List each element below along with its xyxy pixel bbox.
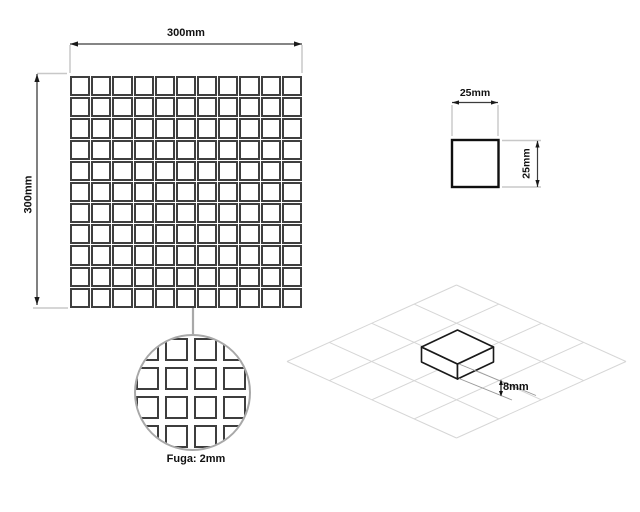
- mosaic-tile: [112, 97, 132, 117]
- mosaic-tile: [70, 288, 90, 308]
- detail-tile: [223, 338, 246, 361]
- detail-tile: [165, 367, 188, 390]
- tile-3d-box: [422, 330, 494, 379]
- mosaic-tile: [239, 76, 259, 96]
- detail-tile: [194, 425, 217, 448]
- mosaic-tile: [112, 245, 132, 265]
- mosaic-tile: [197, 224, 217, 244]
- mosaic-tile: [112, 140, 132, 160]
- mosaic-tile: [91, 267, 111, 287]
- mosaic-tile: [218, 203, 238, 223]
- mosaic-tile: [239, 267, 259, 287]
- mosaic-tile: [261, 76, 281, 96]
- detail-tile: [194, 396, 217, 419]
- mosaic-tile: [91, 245, 111, 265]
- tile-width-label: 25mm: [440, 87, 510, 100]
- mosaic-tile: [176, 245, 196, 265]
- mosaic-tile: [112, 118, 132, 138]
- mosaic-tile: [70, 224, 90, 244]
- mosaic-tile: [239, 118, 259, 138]
- mosaic-tile: [112, 288, 132, 308]
- mosaic-tile: [91, 76, 111, 96]
- mosaic-tile: [282, 182, 302, 202]
- mosaic-tile: [155, 203, 175, 223]
- mosaic-tile: [197, 118, 217, 138]
- arrowhead-up-icon: [535, 141, 539, 148]
- mosaic-tile: [282, 140, 302, 160]
- mosaic-tile: [261, 182, 281, 202]
- mosaic-tile: [134, 203, 154, 223]
- mosaic-tile: [261, 245, 281, 265]
- arrowhead-right-icon: [491, 100, 498, 104]
- mosaic-tile: [261, 118, 281, 138]
- mosaic-tile: [112, 267, 132, 287]
- mosaic-tile: [155, 267, 175, 287]
- grout-label: Fuga: 2mm: [136, 453, 256, 465]
- mosaic-tile: [197, 76, 217, 96]
- mosaic-tile: [176, 182, 196, 202]
- mosaic-tile: [261, 267, 281, 287]
- mosaic-tile: [176, 203, 196, 223]
- detail-tile: [223, 425, 246, 448]
- mosaic-tile: [112, 161, 132, 181]
- tile-specification-drawing: { "drawing": { "panel": { "width_label":…: [0, 0, 640, 512]
- mosaic-tile: [176, 97, 196, 117]
- mosaic-tile: [218, 245, 238, 265]
- mosaic-tile: [70, 97, 90, 117]
- mosaic-tile: [70, 140, 90, 160]
- mosaic-tile: [70, 76, 90, 96]
- mosaic-tile: [197, 203, 217, 223]
- tile-width-dimension: [452, 100, 498, 136]
- mosaic-tile: [261, 97, 281, 117]
- detail-circle: [134, 334, 251, 451]
- mosaic-tile: [155, 97, 175, 117]
- mosaic-tile: [155, 161, 175, 181]
- mosaic-tile: [70, 161, 90, 181]
- mosaic-tile: [91, 288, 111, 308]
- mosaic-tile: [91, 97, 111, 117]
- detail-tile: [165, 396, 188, 419]
- detail-tile: [136, 425, 159, 448]
- detail-tile: [223, 396, 246, 419]
- mosaic-tile: [176, 118, 196, 138]
- mosaic-tile: [261, 288, 281, 308]
- mosaic-tile: [239, 97, 259, 117]
- mosaic-tile: [155, 224, 175, 244]
- mosaic-tile: [134, 140, 154, 160]
- arrowhead-left-icon: [452, 100, 459, 104]
- mosaic-tile: [239, 161, 259, 181]
- mosaic-tile: [197, 97, 217, 117]
- mosaic-tile: [155, 182, 175, 202]
- mosaic-tile: [218, 161, 238, 181]
- mosaic-tile: [91, 140, 111, 160]
- mosaic-tile: [134, 224, 154, 244]
- detail-tile-pattern: [134, 334, 251, 451]
- mosaic-tile: [218, 267, 238, 287]
- mosaic-tile: [218, 76, 238, 96]
- mosaic-tile: [239, 182, 259, 202]
- mosaic-tile: [218, 288, 238, 308]
- mosaic-tile: [134, 161, 154, 181]
- mosaic-tile: [155, 245, 175, 265]
- mosaic-tile: [134, 182, 154, 202]
- mosaic-tile: [239, 140, 259, 160]
- mosaic-tile: [134, 118, 154, 138]
- mosaic-tile: [239, 288, 259, 308]
- thickness-label: 8mm: [503, 381, 543, 394]
- mosaic-tile: [176, 224, 196, 244]
- mosaic-tile: [176, 140, 196, 160]
- detail-tile: [223, 367, 246, 390]
- mosaic-tile: [112, 203, 132, 223]
- mosaic-tile: [91, 203, 111, 223]
- mosaic-tile: [261, 203, 281, 223]
- mosaic-tile: [197, 161, 217, 181]
- mosaic-panel-grid: [70, 76, 302, 308]
- mosaic-tile: [176, 288, 196, 308]
- mosaic-tile: [134, 267, 154, 287]
- detail-tile: [136, 338, 159, 361]
- mosaic-tile: [282, 76, 302, 96]
- mosaic-tile: [176, 267, 196, 287]
- mosaic-tile: [239, 203, 259, 223]
- arrowhead-down-icon: [535, 180, 539, 187]
- detail-tile: [165, 425, 188, 448]
- mosaic-tile: [70, 203, 90, 223]
- arrowhead-left-icon: [70, 41, 78, 46]
- mosaic-tile: [112, 224, 132, 244]
- mosaic-tile: [261, 161, 281, 181]
- panel-height-label: 300mm: [23, 159, 36, 231]
- mosaic-tile: [70, 182, 90, 202]
- mosaic-tile: [261, 140, 281, 160]
- mosaic-tile: [218, 182, 238, 202]
- mosaic-tile: [197, 140, 217, 160]
- mosaic-tile: [282, 288, 302, 308]
- detail-tile: [136, 367, 159, 390]
- mosaic-tile: [155, 118, 175, 138]
- mosaic-tile: [134, 288, 154, 308]
- panel-width-label: 300mm: [150, 27, 222, 40]
- mosaic-tile: [197, 288, 217, 308]
- mosaic-tile: [134, 76, 154, 96]
- mosaic-tile: [282, 97, 302, 117]
- mosaic-tile: [218, 224, 238, 244]
- mosaic-tile: [197, 267, 217, 287]
- mosaic-tile: [282, 267, 302, 287]
- mosaic-tile: [176, 76, 196, 96]
- mosaic-tile: [239, 245, 259, 265]
- detail-tile: [194, 367, 217, 390]
- mosaic-tile: [282, 245, 302, 265]
- mosaic-tile: [155, 288, 175, 308]
- mosaic-tile: [134, 97, 154, 117]
- detail-tile: [194, 338, 217, 361]
- mosaic-tile: [218, 140, 238, 160]
- panel-width-dimension: [70, 41, 302, 73]
- mosaic-tile: [91, 224, 111, 244]
- mosaic-tile: [261, 224, 281, 244]
- mosaic-tile: [155, 140, 175, 160]
- tile-height-label: 25mm: [521, 134, 534, 194]
- arrowhead-up-icon: [34, 74, 39, 82]
- panel-height-dimension: [33, 74, 68, 309]
- mosaic-tile: [91, 118, 111, 138]
- arrowhead-right-icon: [294, 41, 302, 46]
- mosaic-tile: [197, 245, 217, 265]
- mosaic-tile: [112, 76, 132, 96]
- mosaic-tile: [176, 161, 196, 181]
- mosaic-tile: [155, 76, 175, 96]
- mosaic-tile: [197, 182, 217, 202]
- arrowhead-down-icon: [34, 297, 39, 305]
- mosaic-tile: [134, 245, 154, 265]
- mosaic-tile: [239, 224, 259, 244]
- single-tile-outline: [452, 140, 499, 187]
- mosaic-tile: [282, 203, 302, 223]
- mosaic-tile: [282, 161, 302, 181]
- mosaic-tile: [70, 267, 90, 287]
- mosaic-tile: [218, 97, 238, 117]
- detail-tile: [136, 396, 159, 419]
- detail-tile: [165, 338, 188, 361]
- mosaic-tile: [91, 182, 111, 202]
- mosaic-tile: [70, 245, 90, 265]
- mosaic-tile: [91, 161, 111, 181]
- mosaic-tile: [218, 118, 238, 138]
- mosaic-tile: [112, 182, 132, 202]
- mosaic-tile: [282, 224, 302, 244]
- mosaic-tile: [70, 118, 90, 138]
- mosaic-tile: [282, 118, 302, 138]
